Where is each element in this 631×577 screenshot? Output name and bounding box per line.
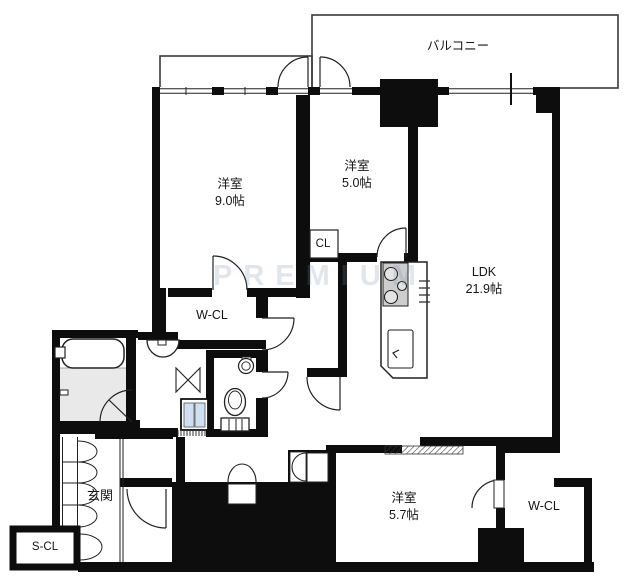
shoe-closet-label: S-CL [32,540,58,555]
bath-faucet-icon [55,347,65,358]
entrance-door-arc [127,489,166,528]
entrance-label: 玄関 [87,487,113,504]
balcony-outline [160,15,618,88]
bifold-door-icon [188,368,200,392]
balcony-door-arc [320,57,350,87]
walls [52,79,594,572]
washroom [147,340,208,436]
corner-basin-icon [239,359,254,374]
walkin-closet-lower-label: W-CL [528,498,560,515]
bedroom-small-door-arc [377,228,406,257]
walkin-closet-upper-label: W-CL [196,307,228,324]
hall-closet-box [228,484,256,504]
corridor-closet-box [307,453,328,482]
bathtub-icon [62,339,124,368]
shoe-closet-door-arc [80,534,102,560]
kitchen [381,262,430,378]
closet-label: CL [316,237,331,252]
bedroom-main-label: 洋室 9.0帖 [215,176,245,209]
toilet-tank [221,418,249,431]
toilet-door-arc [262,372,288,398]
wcl-upper-door-arc [213,256,247,290]
hatched-wall-strip [385,446,463,454]
bedroom-small-label: 洋室 5.0帖 [342,158,372,191]
bifold-door-icon [176,368,188,392]
toilet-room [221,357,254,431]
washbasin-tap-icon [158,340,166,345]
bathroom [55,339,132,422]
toilet-icon [225,389,246,416]
ldk-label: LDK 21.9帖 [466,264,503,297]
floor-plan: バルコニー 洋室 9.0帖 洋室 5.0帖 CL W-CL LDK 21.9帖 … [0,0,631,577]
ldk-door-arc [307,377,340,410]
kitchen-sink-icon [388,330,413,368]
balcony-label: バルコニー [427,38,489,55]
washroom-door-arc [262,318,294,350]
balcony-door-arc [278,57,308,87]
bath-door-handle [60,390,68,395]
bedroom-third-label: 洋室 5.7帖 [389,490,419,523]
